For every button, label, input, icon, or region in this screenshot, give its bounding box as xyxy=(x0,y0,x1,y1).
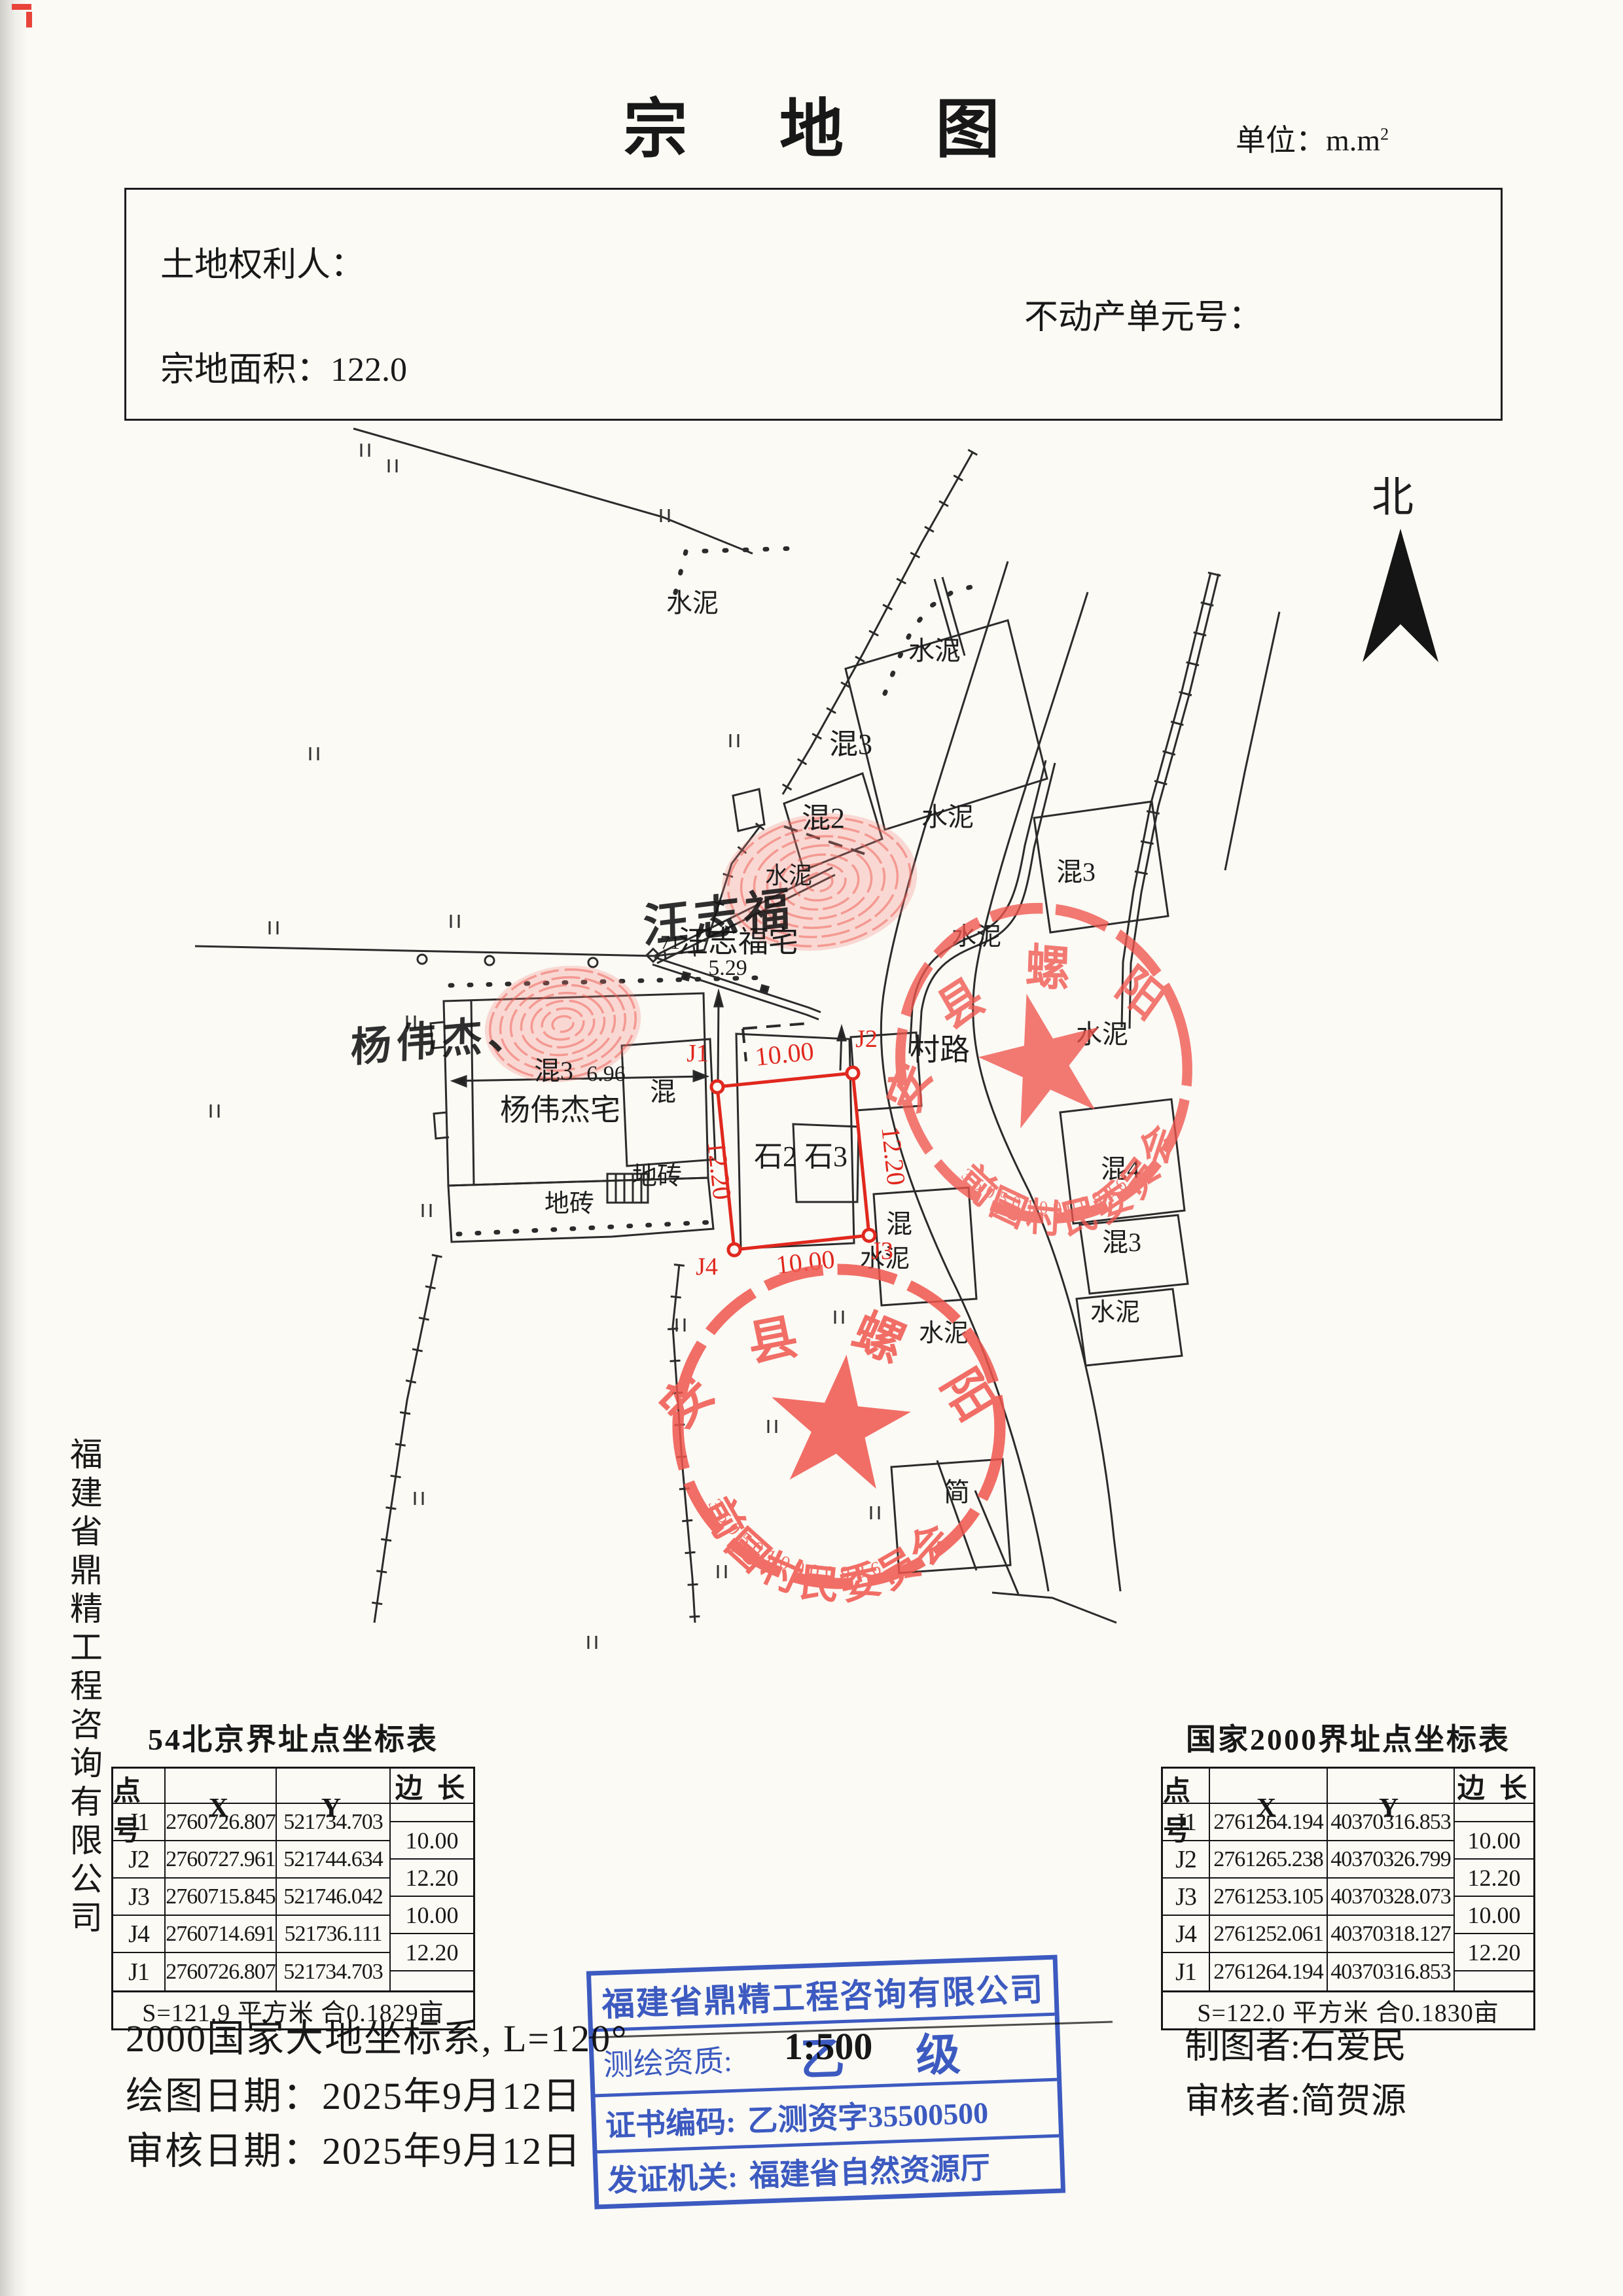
grass-icon xyxy=(423,1204,431,1217)
map-label: 水泥 xyxy=(921,802,974,832)
north-arrow xyxy=(1363,529,1438,662)
grass-icon xyxy=(677,1318,685,1332)
map-label: 12.20 xyxy=(702,1139,737,1201)
parcel-map-document: { "page": { "title": "宗 地 图", "unit_pref… xyxy=(0,0,1623,2296)
table-cell: 2761264.194 xyxy=(1210,1953,1328,1990)
company-vertical-text: 福建省鼎精工程咨询有限公司 xyxy=(60,1437,107,1947)
table-cell: J1 xyxy=(113,1804,166,1840)
map-label: J3 xyxy=(871,1237,893,1265)
table-cell: 40370318.127 xyxy=(1328,1916,1454,1952)
table-cell: 2761265.238 xyxy=(1210,1841,1328,1877)
edge-length-cell: 12.20 xyxy=(1455,1860,1533,1897)
table-row: J12761264.19440370316.853 xyxy=(1163,1804,1454,1841)
grass-icon xyxy=(211,1104,219,1118)
map-label: 混2 xyxy=(802,802,845,834)
map-label: 6.96 xyxy=(586,1062,626,1086)
map-label: 北 xyxy=(1372,474,1414,521)
map-label: 水泥 xyxy=(908,636,961,665)
reviewer: 审核者:简贺源 xyxy=(1185,2072,1406,2123)
map-label: 混 xyxy=(886,1209,912,1239)
table-cell: J3 xyxy=(113,1879,166,1915)
coord-table-cgcs2000: 国家2000界址点坐标表 点 号 X Y J12761264.194403703… xyxy=(1161,1716,1535,2030)
table-row: J42761252.06140370318.127 xyxy=(1163,1916,1454,1953)
table-cell: 2760727.961 xyxy=(166,1841,277,1877)
grass-icon xyxy=(730,734,738,747)
table-cell: J4 xyxy=(1163,1916,1210,1952)
table-cell: 521736.111 xyxy=(277,1916,389,1952)
boundary-point-J4 xyxy=(728,1244,740,1256)
table-row: J32761253.10540370328.073 xyxy=(1163,1879,1454,1916)
table-cell: 2760726.807 xyxy=(166,1804,277,1840)
table-cell: 521746.042 xyxy=(277,1879,389,1915)
edge-length-cells: 10.0012.2010.0012.20 xyxy=(1455,1804,1533,1990)
table-cell: 40370316.853 xyxy=(1328,1804,1454,1840)
wall-rungs xyxy=(1137,573,1215,892)
table-row: J42760714.691521736.111 xyxy=(113,1916,389,1953)
map-label: 10.00 xyxy=(753,1036,815,1071)
stamp-qualification-label: 测绘资质: xyxy=(603,2037,733,2085)
edge-length-cell: 10.00 xyxy=(391,1897,473,1934)
stamp-cert-value: 乙测资字35500500 xyxy=(747,2089,989,2140)
grass-icon xyxy=(871,1506,879,1519)
table-cell: J2 xyxy=(113,1841,166,1877)
edge-length-cell: 10.00 xyxy=(391,1822,473,1860)
table-cell: J1 xyxy=(1163,1953,1210,1990)
grass-icon xyxy=(661,509,669,522)
table-cell: 2761253.105 xyxy=(1210,1879,1328,1915)
edge-length-cell: 10.00 xyxy=(1455,1897,1533,1934)
cartographer: 制图者:石爱民 xyxy=(1185,2017,1406,2068)
table-rows: J12761264.19440370316.853J22761265.23840… xyxy=(1163,1804,1454,1990)
table-cell: 40370326.799 xyxy=(1328,1841,1454,1877)
map-label: J1 xyxy=(687,1040,709,1067)
grass-icon xyxy=(718,1565,726,1578)
map-label: 混3 xyxy=(829,728,872,760)
crs-note: 2000国家大地坐标系, L=120° xyxy=(126,2007,628,2062)
table-cell: J4 xyxy=(113,1916,166,1952)
draw-date: 绘图日期：2025年9月12日 xyxy=(126,2065,582,2120)
grass-icon xyxy=(389,459,397,472)
map-label: 混3 xyxy=(534,1056,573,1086)
review-date: 审核日期：2025年9月12日 xyxy=(126,2120,582,2175)
grass-icon xyxy=(451,915,459,928)
edge-length-cell: 12.20 xyxy=(391,1934,473,1971)
table-cell: 2760726.807 xyxy=(166,1953,277,1990)
table-cell: 40370328.073 xyxy=(1328,1879,1454,1915)
table-cell: 2760714.691 xyxy=(166,1916,277,1952)
map-label: 水泥 xyxy=(1090,1299,1140,1326)
map-label: 水泥 xyxy=(666,588,719,618)
table-cell: J1 xyxy=(113,1953,166,1990)
grass-icon xyxy=(270,921,277,934)
edge-length-cell: 10.00 xyxy=(1455,1822,1533,1860)
table-row: J22761265.23840370326.799 xyxy=(1163,1841,1454,1879)
grass-icon xyxy=(361,444,369,457)
col-header-edge: 边 长 xyxy=(1455,1769,1533,1804)
surveying-company-stamp: 福建省鼎精工程咨询有限公司 测绘资质: 乙 级 证书编码: 乙测资字355005… xyxy=(586,1955,1065,2210)
map-label: J2 xyxy=(855,1025,878,1053)
grass-icon xyxy=(415,1492,423,1505)
coord-table-beijing54: 54北京界址点坐标表 点 号 X Y J12760726.807521734.7… xyxy=(111,1716,475,2030)
table-cell: 521744.634 xyxy=(277,1841,389,1877)
edge-length-cell: 12.20 xyxy=(391,1860,473,1897)
edge-length-cell: 12.20 xyxy=(1455,1934,1533,1971)
grass-icon xyxy=(588,1636,596,1649)
table-cell: 521734.703 xyxy=(277,1804,389,1840)
map-label: 石2 xyxy=(754,1140,797,1173)
table-rows: J12760726.807521734.703J22760727.9615217… xyxy=(113,1804,389,1990)
grass-icon xyxy=(310,747,318,760)
map-label: 杨伟杰宅 xyxy=(500,1093,620,1127)
boundary-point-J2 xyxy=(847,1067,859,1079)
fence-jog xyxy=(733,789,764,831)
table-cell: J1 xyxy=(1163,1804,1210,1840)
table-row: J12761264.19440370316.853 xyxy=(1163,1953,1454,1990)
map-label: 地砖 xyxy=(544,1190,594,1218)
map-label: J4 xyxy=(696,1253,718,1280)
table-cell: 521734.703 xyxy=(277,1953,389,1990)
map-label: 5.29 xyxy=(708,956,747,980)
table-cell: 2761264.194 xyxy=(1210,1804,1328,1840)
map-label: 12.20 xyxy=(876,1125,911,1186)
table-cell: 40370316.853 xyxy=(1328,1953,1454,1990)
village-committee-stamp-lower: 惠安县螺阳镇 前园村民委员会 3505010000936 xyxy=(631,1250,1044,1627)
table-cell: J3 xyxy=(1163,1879,1210,1915)
map-label: 石3 xyxy=(804,1140,847,1173)
map-label: 混3 xyxy=(1102,1227,1141,1257)
table-row: J12760726.807521734.703 xyxy=(113,1953,389,1990)
table-row: J32760715.845521746.042 xyxy=(113,1879,389,1916)
map-label: 简 xyxy=(944,1477,970,1507)
table-title: 国家2000界址点坐标表 xyxy=(1161,1716,1535,1759)
stamp-qualification-value: 乙 级 xyxy=(743,2015,1048,2090)
table-cell: J2 xyxy=(1163,1841,1210,1877)
edge-length-cells: 10.0012.2010.0012.20 xyxy=(391,1804,473,1990)
stamp-cert-label: 证书编码: xyxy=(605,2097,737,2145)
col-header-edge: 边 长 xyxy=(391,1769,473,1804)
grass-icon xyxy=(768,1420,776,1433)
map-label: 地砖 xyxy=(632,1163,682,1190)
table-title: 54北京界址点坐标表 xyxy=(111,1716,475,1759)
table-row: J22760727.961521744.634 xyxy=(113,1841,389,1879)
map-label: 混3 xyxy=(1056,857,1096,887)
table-cell: 2760715.845 xyxy=(166,1879,277,1915)
boundary-point-J1 xyxy=(711,1081,723,1093)
table-cell: 2761252.061 xyxy=(1210,1916,1328,1952)
table-row: J12760726.807521734.703 xyxy=(113,1804,389,1841)
stamp-issuer-label: 发证机关: xyxy=(607,2153,739,2200)
stamp-issuer-value: 福建省自然资源厅 xyxy=(749,2144,991,2195)
map-label: 混 xyxy=(650,1077,676,1106)
